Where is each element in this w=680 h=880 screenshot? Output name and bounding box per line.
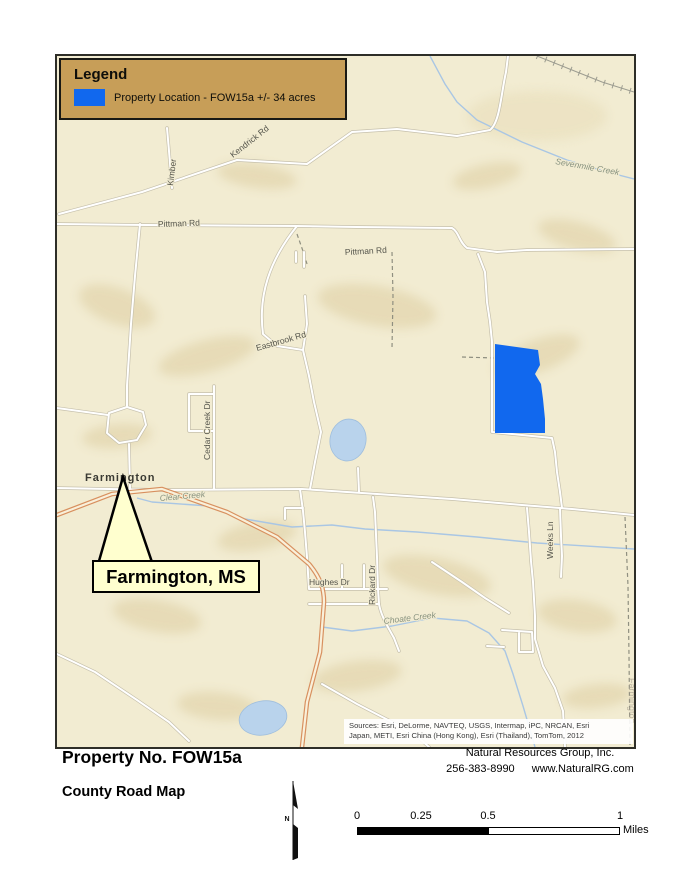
callout-box: Farmington, MS — [92, 560, 260, 593]
legend-item-label: Property Location - FOW15a +/- 34 acres — [114, 92, 315, 104]
company-name: Natural Resources Group, Inc. — [425, 746, 655, 762]
legend: Legend Property Location - FOW15a +/- 34… — [59, 58, 347, 120]
road-label-pittman-rd-west: Pittman Rd — [158, 218, 201, 229]
scalebar-unit: Miles — [623, 824, 649, 836]
scalebar-tick-05: 0.5 — [480, 810, 495, 822]
north-arrow-icon: N — [283, 779, 305, 863]
scalebar-black-segment — [357, 827, 488, 835]
scalebar-tick-1: 1 — [617, 810, 623, 822]
map-canvas: Kimber Kendrick Rd Pittman Rd Pittman Rd… — [57, 56, 634, 747]
map-frame: Kimber Kendrick Rd Pittman Rd Pittman Rd… — [55, 54, 636, 749]
creek-label-sevenmile: Sevenmile Creek — [555, 156, 621, 177]
road-label-hughes-dr: Hughes Dr — [309, 577, 350, 587]
road-label-kendrick-rd: Kendrick Rd — [228, 123, 271, 160]
creek-label-choate: Choate Creek — [383, 610, 437, 626]
scalebar-white-segment — [488, 827, 620, 835]
company-contact: 256-383-8990 www.NaturalRG.com — [425, 762, 655, 778]
roads — [57, 56, 634, 747]
sources-line-2: Japan, METI, Esri China (Hong Kong), Esr… — [349, 731, 628, 742]
property-location-swatch — [74, 89, 105, 106]
edge-label-farmington: Farmington — [627, 678, 634, 724]
property-polygon — [495, 344, 545, 433]
page: Kimber Kendrick Rd Pittman Rd Pittman Rd… — [0, 0, 680, 880]
scalebar-tick-0: 0 — [354, 810, 360, 822]
company-phone: 256-383-8990 — [446, 763, 515, 775]
map-type-subtitle: County Road Map — [62, 784, 185, 800]
road-label-cedar-creek-dr: Cedar Creek Dr — [202, 400, 212, 460]
scalebar-tick-025: 0.25 — [410, 810, 431, 822]
sources-line-1: Sources: Esri, DeLorme, NAVTEQ, USGS, In… — [349, 721, 628, 732]
road-label-weeks-ln: Weeks Ln — [545, 521, 555, 559]
road-label-pittman-rd-east: Pittman Rd — [345, 245, 388, 257]
north-label: N — [285, 816, 290, 823]
road-label-rickard-dr: Rickard Dr — [367, 565, 377, 605]
property-number-title: Property No. FOW15a — [62, 747, 242, 768]
railroad — [537, 56, 634, 92]
legend-title: Legend — [74, 66, 345, 83]
pond — [327, 416, 370, 464]
company-block: Natural Resources Group, Inc. 256-383-89… — [425, 746, 655, 778]
legend-row: Property Location - FOW15a +/- 34 acres — [74, 89, 345, 106]
sources-note: Sources: Esri, DeLorme, NAVTEQ, USGS, In… — [344, 719, 633, 744]
company-website: www.NaturalRG.com — [532, 763, 634, 775]
